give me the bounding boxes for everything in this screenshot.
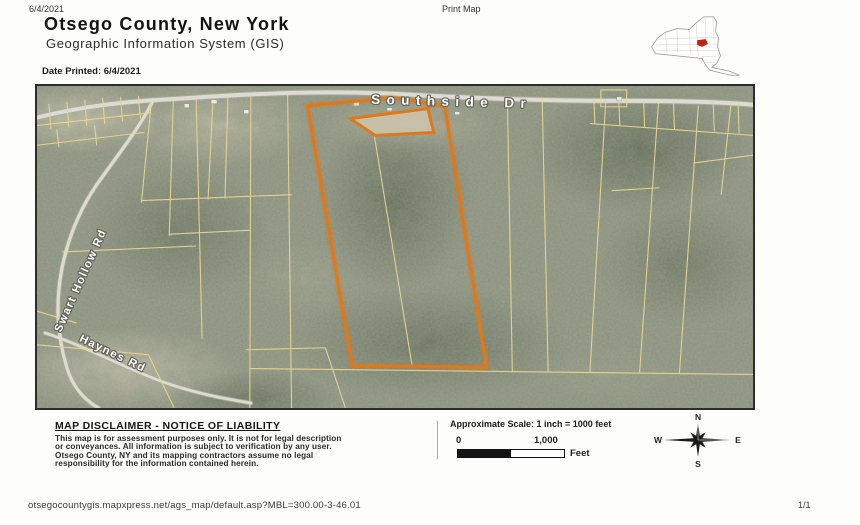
compass-west-label: W — [654, 435, 663, 445]
print-header-title: Print Map — [442, 4, 481, 14]
building — [617, 97, 622, 101]
footer-divider — [437, 421, 438, 459]
scale-unit-label: Feet — [570, 448, 590, 459]
compass-north-label: N — [695, 412, 701, 422]
scale-bar — [457, 449, 565, 458]
scale-text: Approximate Scale: 1 inch = 1000 feet — [450, 419, 620, 429]
scale-section: Approximate Scale: 1 inch = 1000 feet 0 … — [450, 419, 620, 429]
print-footer-url: otsegocountygis.mapxpress.net/ags_map/de… — [28, 500, 361, 511]
ny-state-map-icon — [645, 12, 763, 76]
building — [455, 112, 460, 115]
compass-south-label: S — [695, 459, 701, 469]
print-map-page: 6/4/2021 Print Map Otsego County, New Yo… — [0, 0, 860, 525]
scale-max-label: 1,000 — [534, 435, 558, 446]
print-header-date: 6/4/2021 — [29, 4, 64, 14]
ny-state-locator-inset — [645, 12, 763, 76]
page-subtitle: Geographic Information System (GIS) — [46, 36, 284, 51]
compass-east-label: E — [735, 435, 741, 445]
map-overlay: Southside Dr Swart Hollow Rd Haynes Rd — [37, 86, 753, 408]
building — [244, 110, 249, 114]
map-disclaimer: MAP DISCLAIMER - NOTICE OF LIABILITY Thi… — [55, 420, 455, 469]
date-printed-label: Date Printed: 6/4/2021 — [42, 66, 141, 77]
page-number: 1/1 — [798, 500, 811, 510]
aerial-parcel-map: Southside Dr Swart Hollow Rd Haynes Rd — [35, 84, 755, 410]
compass-star-highlight — [698, 423, 732, 440]
state-outline — [652, 17, 739, 76]
scale-zero-label: 0 — [456, 435, 461, 446]
disclaimer-line: responsibility for the information conta… — [55, 460, 455, 468]
disclaimer-title: MAP DISCLAIMER - NOTICE OF LIABILITY — [55, 420, 455, 432]
page-title: Otsego County, New York — [44, 14, 290, 35]
building — [387, 108, 392, 111]
compass-rose: N S W E — [650, 411, 746, 469]
building — [184, 104, 189, 108]
building — [211, 100, 217, 104]
compass-icon: N S W E — [650, 411, 746, 469]
